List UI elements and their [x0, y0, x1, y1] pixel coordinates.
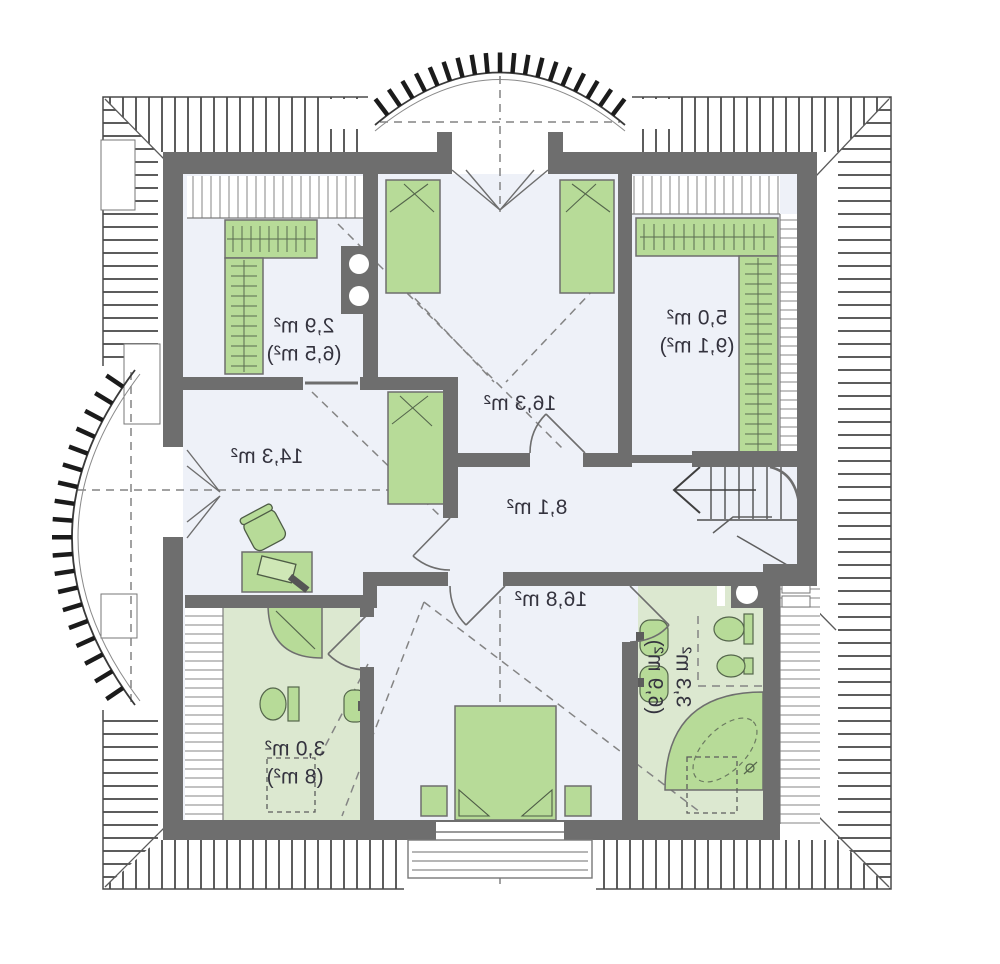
room-total-area: (6,9 m²): [641, 639, 669, 714]
floor-plan-canvas: [0, 0, 1000, 964]
room-area: 5,0 m²: [667, 306, 728, 329]
bed-icon-side: [388, 392, 444, 504]
room-area: 3,3 m²: [672, 647, 695, 708]
room-label-bathroom-left: 3,0 m² (8 m²): [265, 735, 326, 790]
room-label-closet-top-left: 2,9 m² (6,5 m²): [266, 312, 341, 367]
room-label-bathroom-right: 3,3 m² (6,9 m²): [641, 639, 696, 714]
room-area: 16,3 m²: [484, 392, 557, 415]
nightstand-icon: [421, 786, 447, 816]
balcony-railing: [408, 840, 592, 878]
room-label-bedroom-top: 16,3 m²: [484, 390, 557, 418]
bidet-icon: [717, 655, 753, 677]
stair-balustrade: [632, 455, 697, 463]
room-area: 2,9 m²: [274, 314, 335, 337]
room-area: 3,0 m²: [265, 737, 326, 760]
room-label-closet-top-right: 5,0 m² (9,1 m²): [659, 304, 734, 359]
room-total-area: (8 m²): [265, 763, 326, 791]
room-area: 14,3 m²: [231, 445, 304, 468]
room-label-bedroom-bottom: 16,8 m²: [515, 586, 588, 614]
nightstand-icon: [565, 786, 591, 816]
desk-icon: [242, 552, 312, 593]
wall-bedroom-bathroom-right: [622, 642, 638, 822]
room-label-hall: 8,1 m²: [507, 494, 568, 522]
bed-icon-right: [560, 180, 614, 293]
toilet-icon-left-bath: [260, 687, 299, 721]
room-label-bedroom-left: 14,3 m²: [231, 443, 304, 471]
room-area: 16,8 m²: [515, 588, 588, 611]
bed-icon-left: [386, 180, 440, 293]
wall-bedroom-closet-right: [618, 174, 632, 465]
room-total-area: (6,5 m²): [266, 340, 341, 368]
room-area: 8,1 m²: [507, 496, 568, 519]
room-total-area: (9,1 m²): [659, 332, 734, 360]
floor-plan-page: 2,9 m² (6,5 m²) 16,3 m² 5,0 m² (9,1 m²) …: [0, 0, 1000, 964]
